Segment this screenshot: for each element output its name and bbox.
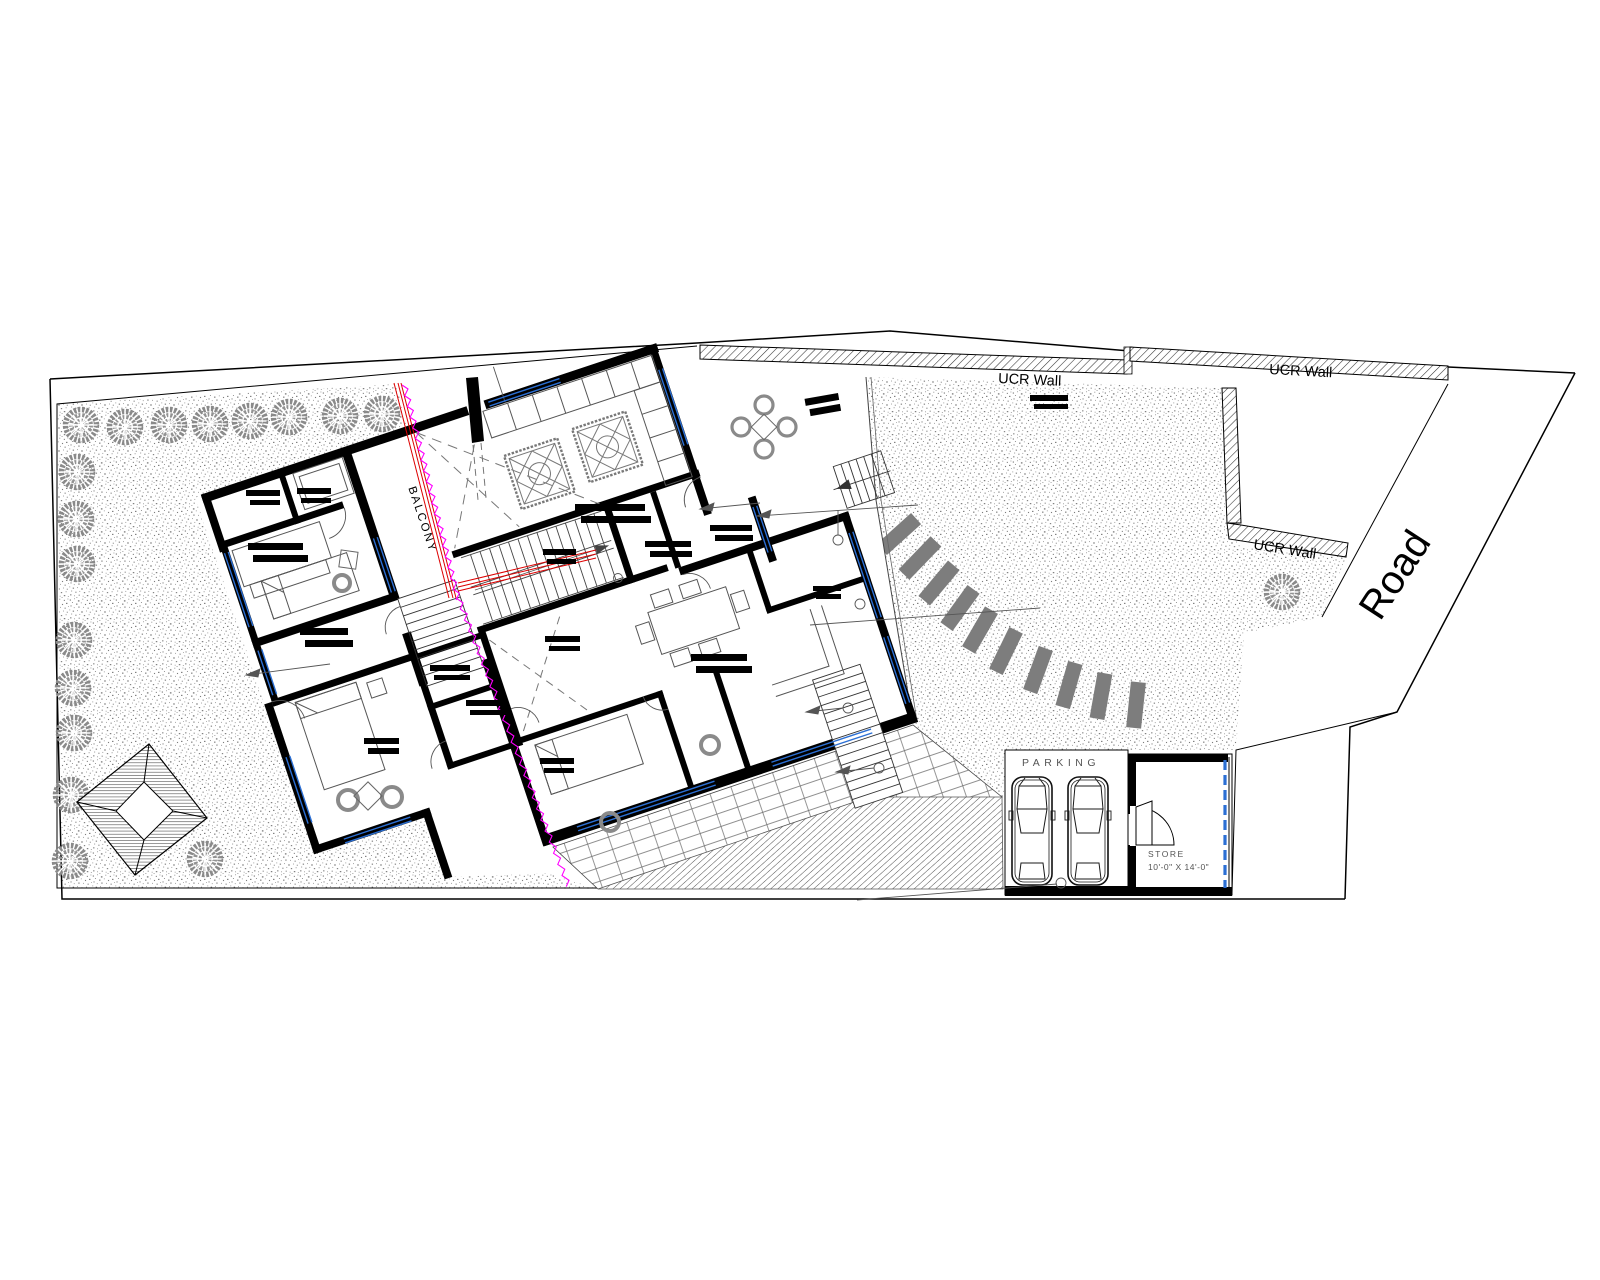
svg-text:STORE: STORE [1148,849,1185,859]
svg-text:10'-0" X 14'-0": 10'-0" X 14'-0" [1148,862,1209,872]
svg-text:UCR Wall: UCR Wall [1269,362,1333,381]
svg-text:PARKING: PARKING [1022,757,1100,769]
svg-text:UCR Wall: UCR Wall [998,371,1062,390]
